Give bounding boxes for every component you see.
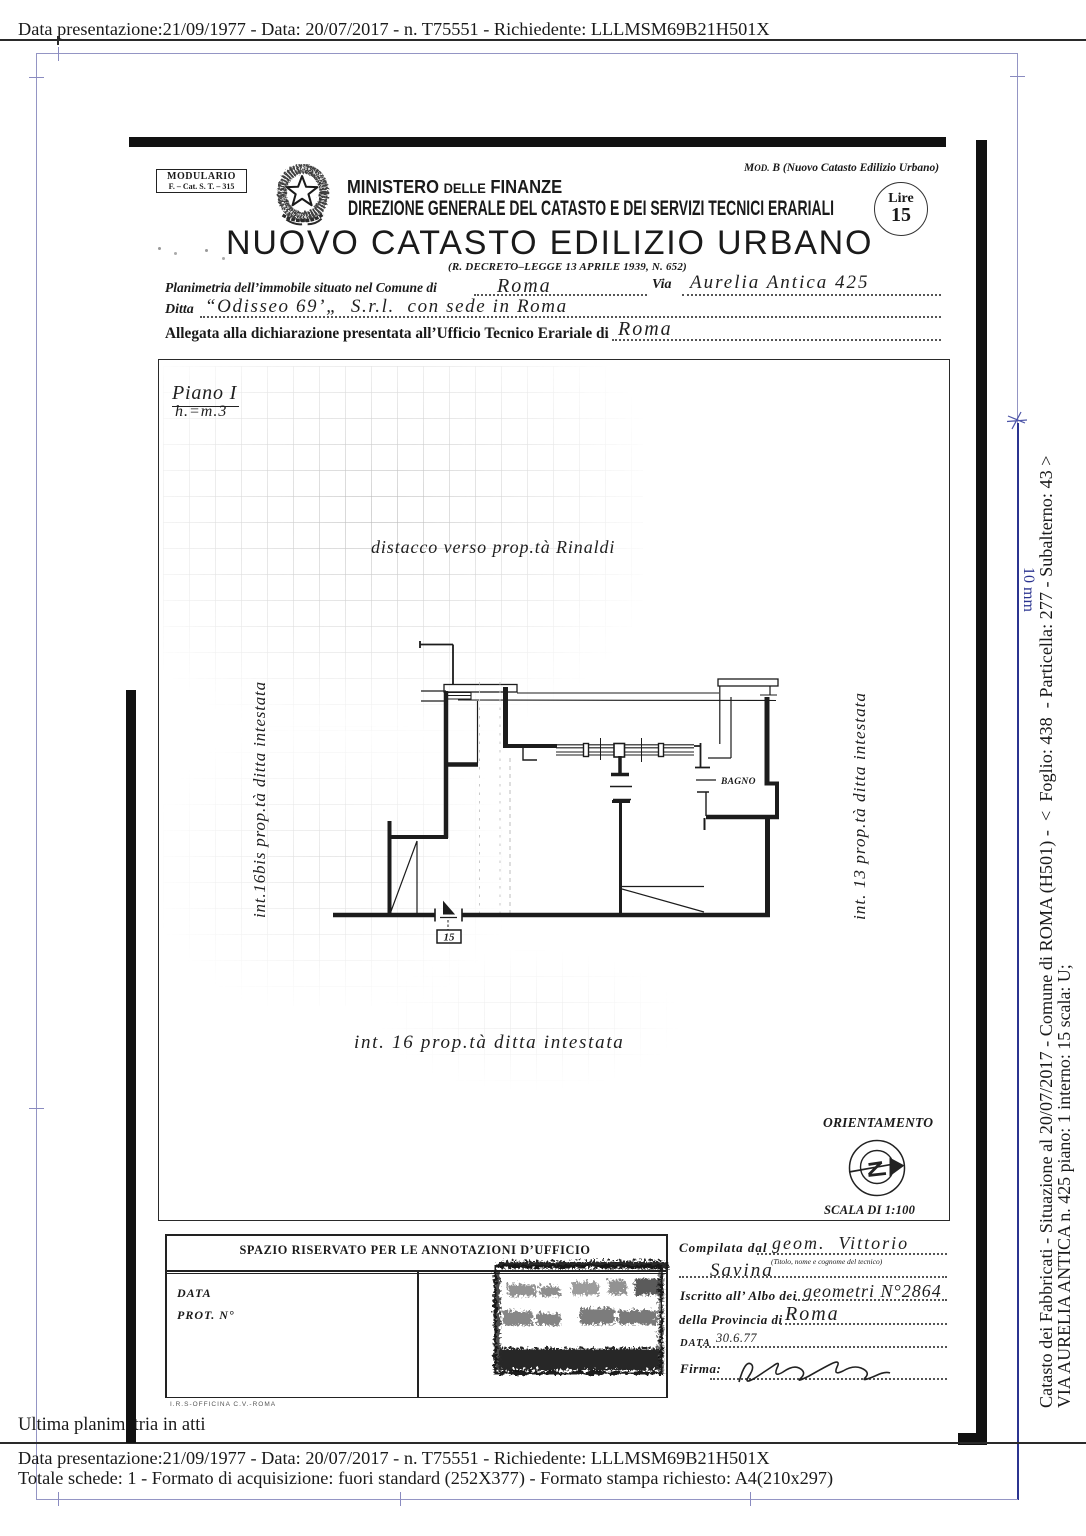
svg-text:15: 15 (444, 932, 456, 944)
svg-text:BAGNO: BAGNO (720, 777, 756, 787)
